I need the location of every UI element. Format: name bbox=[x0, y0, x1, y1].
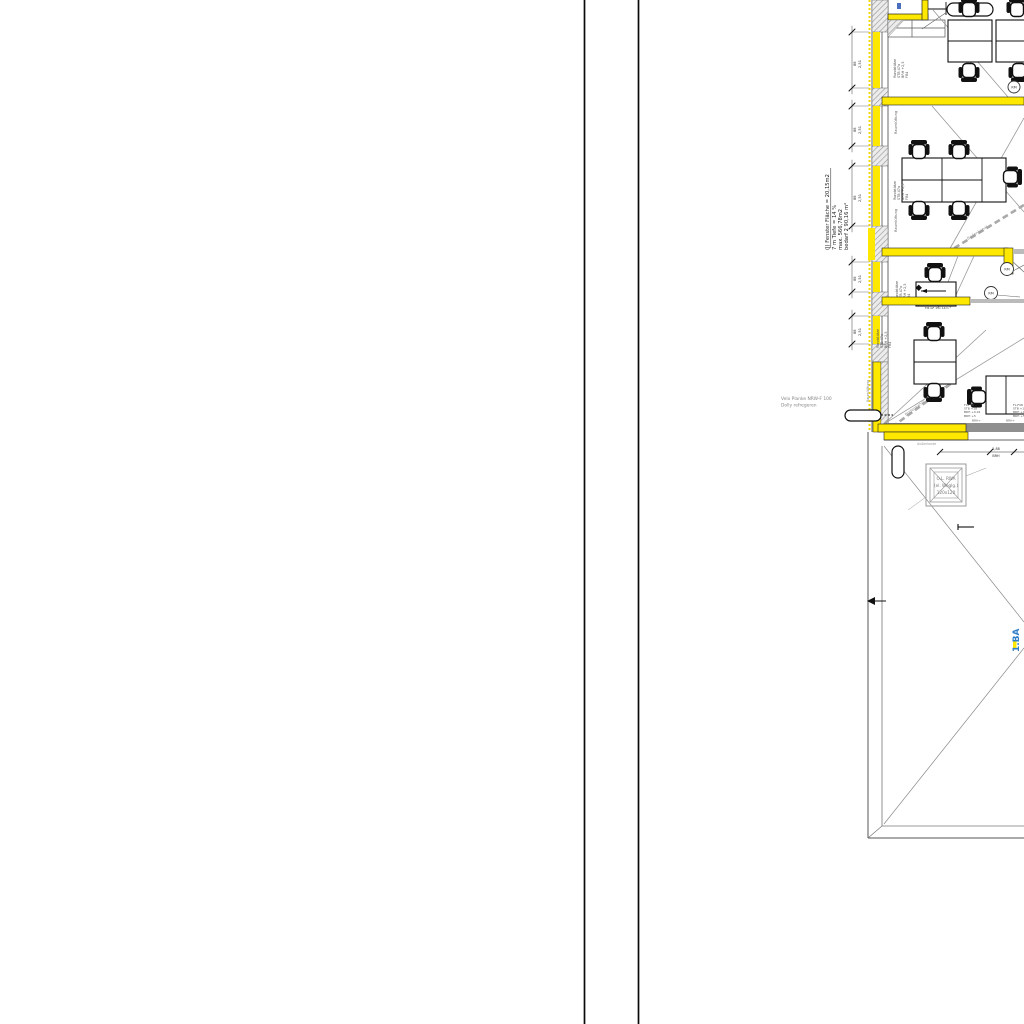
room-wall-yellow-v bbox=[922, 0, 928, 20]
desk-annotation-block: FL-F08 STB +18 BRH +0,91 BRH +5 bbox=[1013, 403, 1024, 418]
west-exterior-wall: Raumlüftung bbox=[866, 0, 888, 432]
row4-office: Rundstütze STB 47a BRH +2,5 F84 Bodenkan… bbox=[781, 322, 1024, 440]
chair bbox=[949, 202, 970, 221]
rwa-text: 120x120 bbox=[937, 490, 956, 495]
dim-text: BRH bbox=[992, 454, 1000, 458]
anno-line: F84 bbox=[888, 342, 892, 348]
dim-window-2: 88 2,51 bbox=[849, 100, 869, 152]
hall-corner-diag bbox=[868, 826, 882, 838]
duct-label: Bodenkanal bbox=[966, 224, 989, 241]
chair bbox=[949, 140, 970, 159]
dim-text: 2,51 bbox=[858, 126, 862, 134]
wall-frag bbox=[1013, 262, 1024, 272]
chair bbox=[924, 384, 945, 403]
duct-label: Bodenkanal bbox=[904, 399, 926, 417]
anno-line: F84 bbox=[905, 72, 909, 78]
chair bbox=[924, 322, 945, 341]
dim-text: 2,51 bbox=[858, 194, 862, 202]
dim-text: 2,51 bbox=[858, 275, 862, 283]
chair bbox=[909, 202, 930, 221]
dim-text: 88 bbox=[853, 127, 857, 132]
chair bbox=[959, 64, 980, 83]
dim-window-1: 88 2,51 bbox=[849, 26, 869, 94]
wall-pier-yellow-mark bbox=[868, 228, 875, 260]
rwa-text: (el. Weglg.) bbox=[934, 483, 958, 488]
detector-leader bbox=[997, 295, 1020, 297]
wall-yellow bbox=[878, 424, 966, 432]
dim-text: 2,51 bbox=[858, 60, 862, 68]
wall-pier bbox=[872, 0, 888, 32]
blue-marker bbox=[897, 3, 901, 9]
chair bbox=[1009, 64, 1024, 83]
dimension-chain: 88 2,51 88 2,51 88 2,51 bbox=[849, 26, 869, 350]
dim-window-5: 88 2,51 bbox=[849, 310, 869, 350]
wall-gray-cont bbox=[1013, 249, 1024, 254]
dim-text: 88 bbox=[853, 276, 857, 281]
column-capsule-vertical bbox=[892, 446, 904, 478]
detector-label: RM bbox=[1011, 86, 1016, 90]
window-strip bbox=[873, 166, 880, 226]
wall-yellow-2 bbox=[884, 432, 968, 440]
page-divider-lines bbox=[585, 0, 639, 1024]
edge-note: Außenkante bbox=[917, 442, 936, 446]
drawing-canvas: Raumlüftung 88 2,51 88 2,51 bbox=[0, 0, 1024, 1024]
window-label: Raumlüftung bbox=[894, 209, 898, 232]
dim-window-3: 88 2,51 bbox=[849, 160, 869, 232]
wall-side-note: Raumlüftung bbox=[866, 380, 870, 402]
cabinet-hatch bbox=[888, 20, 904, 37]
dim-text: 2,51 bbox=[858, 328, 862, 336]
wall-pier bbox=[872, 146, 888, 166]
rwa-text: O.L. RWA bbox=[937, 476, 956, 481]
left-note-line1: Velo Planke NRW-F 100 bbox=[781, 396, 832, 402]
detector-label: RM bbox=[1004, 268, 1009, 272]
brh-label: BRH+ bbox=[972, 419, 981, 423]
dim-window-4: 88 2,51 bbox=[849, 256, 869, 298]
wall-gray-cont bbox=[970, 299, 1024, 303]
floor-box-label: F.B.GF 15x 14m bbox=[925, 306, 949, 310]
anno-line: BRH +5 bbox=[964, 414, 976, 418]
rwa-leader bbox=[966, 468, 986, 476]
window-strip bbox=[873, 262, 880, 292]
wall-yellow bbox=[882, 97, 1024, 105]
detector-label: RM bbox=[988, 292, 993, 296]
brh-label: BRH+ bbox=[1006, 419, 1015, 423]
fenster-note-line4: bedarf 2 90,16 m² bbox=[844, 203, 850, 250]
left-note-line2: Dolly refregeren bbox=[781, 403, 817, 409]
chair bbox=[925, 263, 946, 282]
wall-yellow bbox=[882, 297, 970, 305]
fenster-note-line1: (J) Fenster Fläche = 20,15m2 bbox=[825, 174, 831, 250]
chair bbox=[909, 140, 930, 159]
dim-text: 88 bbox=[853, 329, 857, 334]
fenster-note: (J) Fenster Fläche = 20,15m2 7 m Tiefe =… bbox=[825, 168, 850, 250]
hall: Außenkante 5,88 BRH O.L. RWA (el. Weglg.… bbox=[867, 432, 1024, 838]
window-annotation-block: Rundstütze STB 47a BRH +2,5 F84 bbox=[893, 59, 909, 78]
dim-text: 88 bbox=[853, 195, 857, 200]
blue-room-label: 1.BA bbox=[1012, 628, 1022, 652]
column-capsule bbox=[845, 410, 881, 421]
window-annotation-block: Rundstütze STB 47a BRH +2,5 F84 bbox=[876, 329, 892, 348]
chair bbox=[1007, 0, 1024, 17]
rwa-rooflight: O.L. RWA (el. Weglg.) 120x120 bbox=[908, 464, 986, 510]
window-label: Raumlüftung bbox=[894, 111, 898, 134]
dim-text: 88 bbox=[853, 61, 857, 66]
anno-line: BRH +5 bbox=[1013, 414, 1024, 418]
hall-diagonal bbox=[884, 446, 1024, 622]
floor-plan-svg: Raumlüftung 88 2,51 88 2,51 bbox=[0, 0, 1024, 1024]
rwa-leader bbox=[908, 497, 926, 510]
left-note: Velo Planke NRW-F 100 Dolly refregeren bbox=[781, 396, 832, 409]
hall-diagonal bbox=[884, 648, 1024, 824]
wall-yellow bbox=[882, 248, 1008, 256]
dim-text: 5,88 bbox=[992, 447, 1000, 451]
window-strip bbox=[873, 32, 880, 88]
anno-line: F84 bbox=[905, 194, 909, 200]
window-strip bbox=[873, 106, 880, 146]
